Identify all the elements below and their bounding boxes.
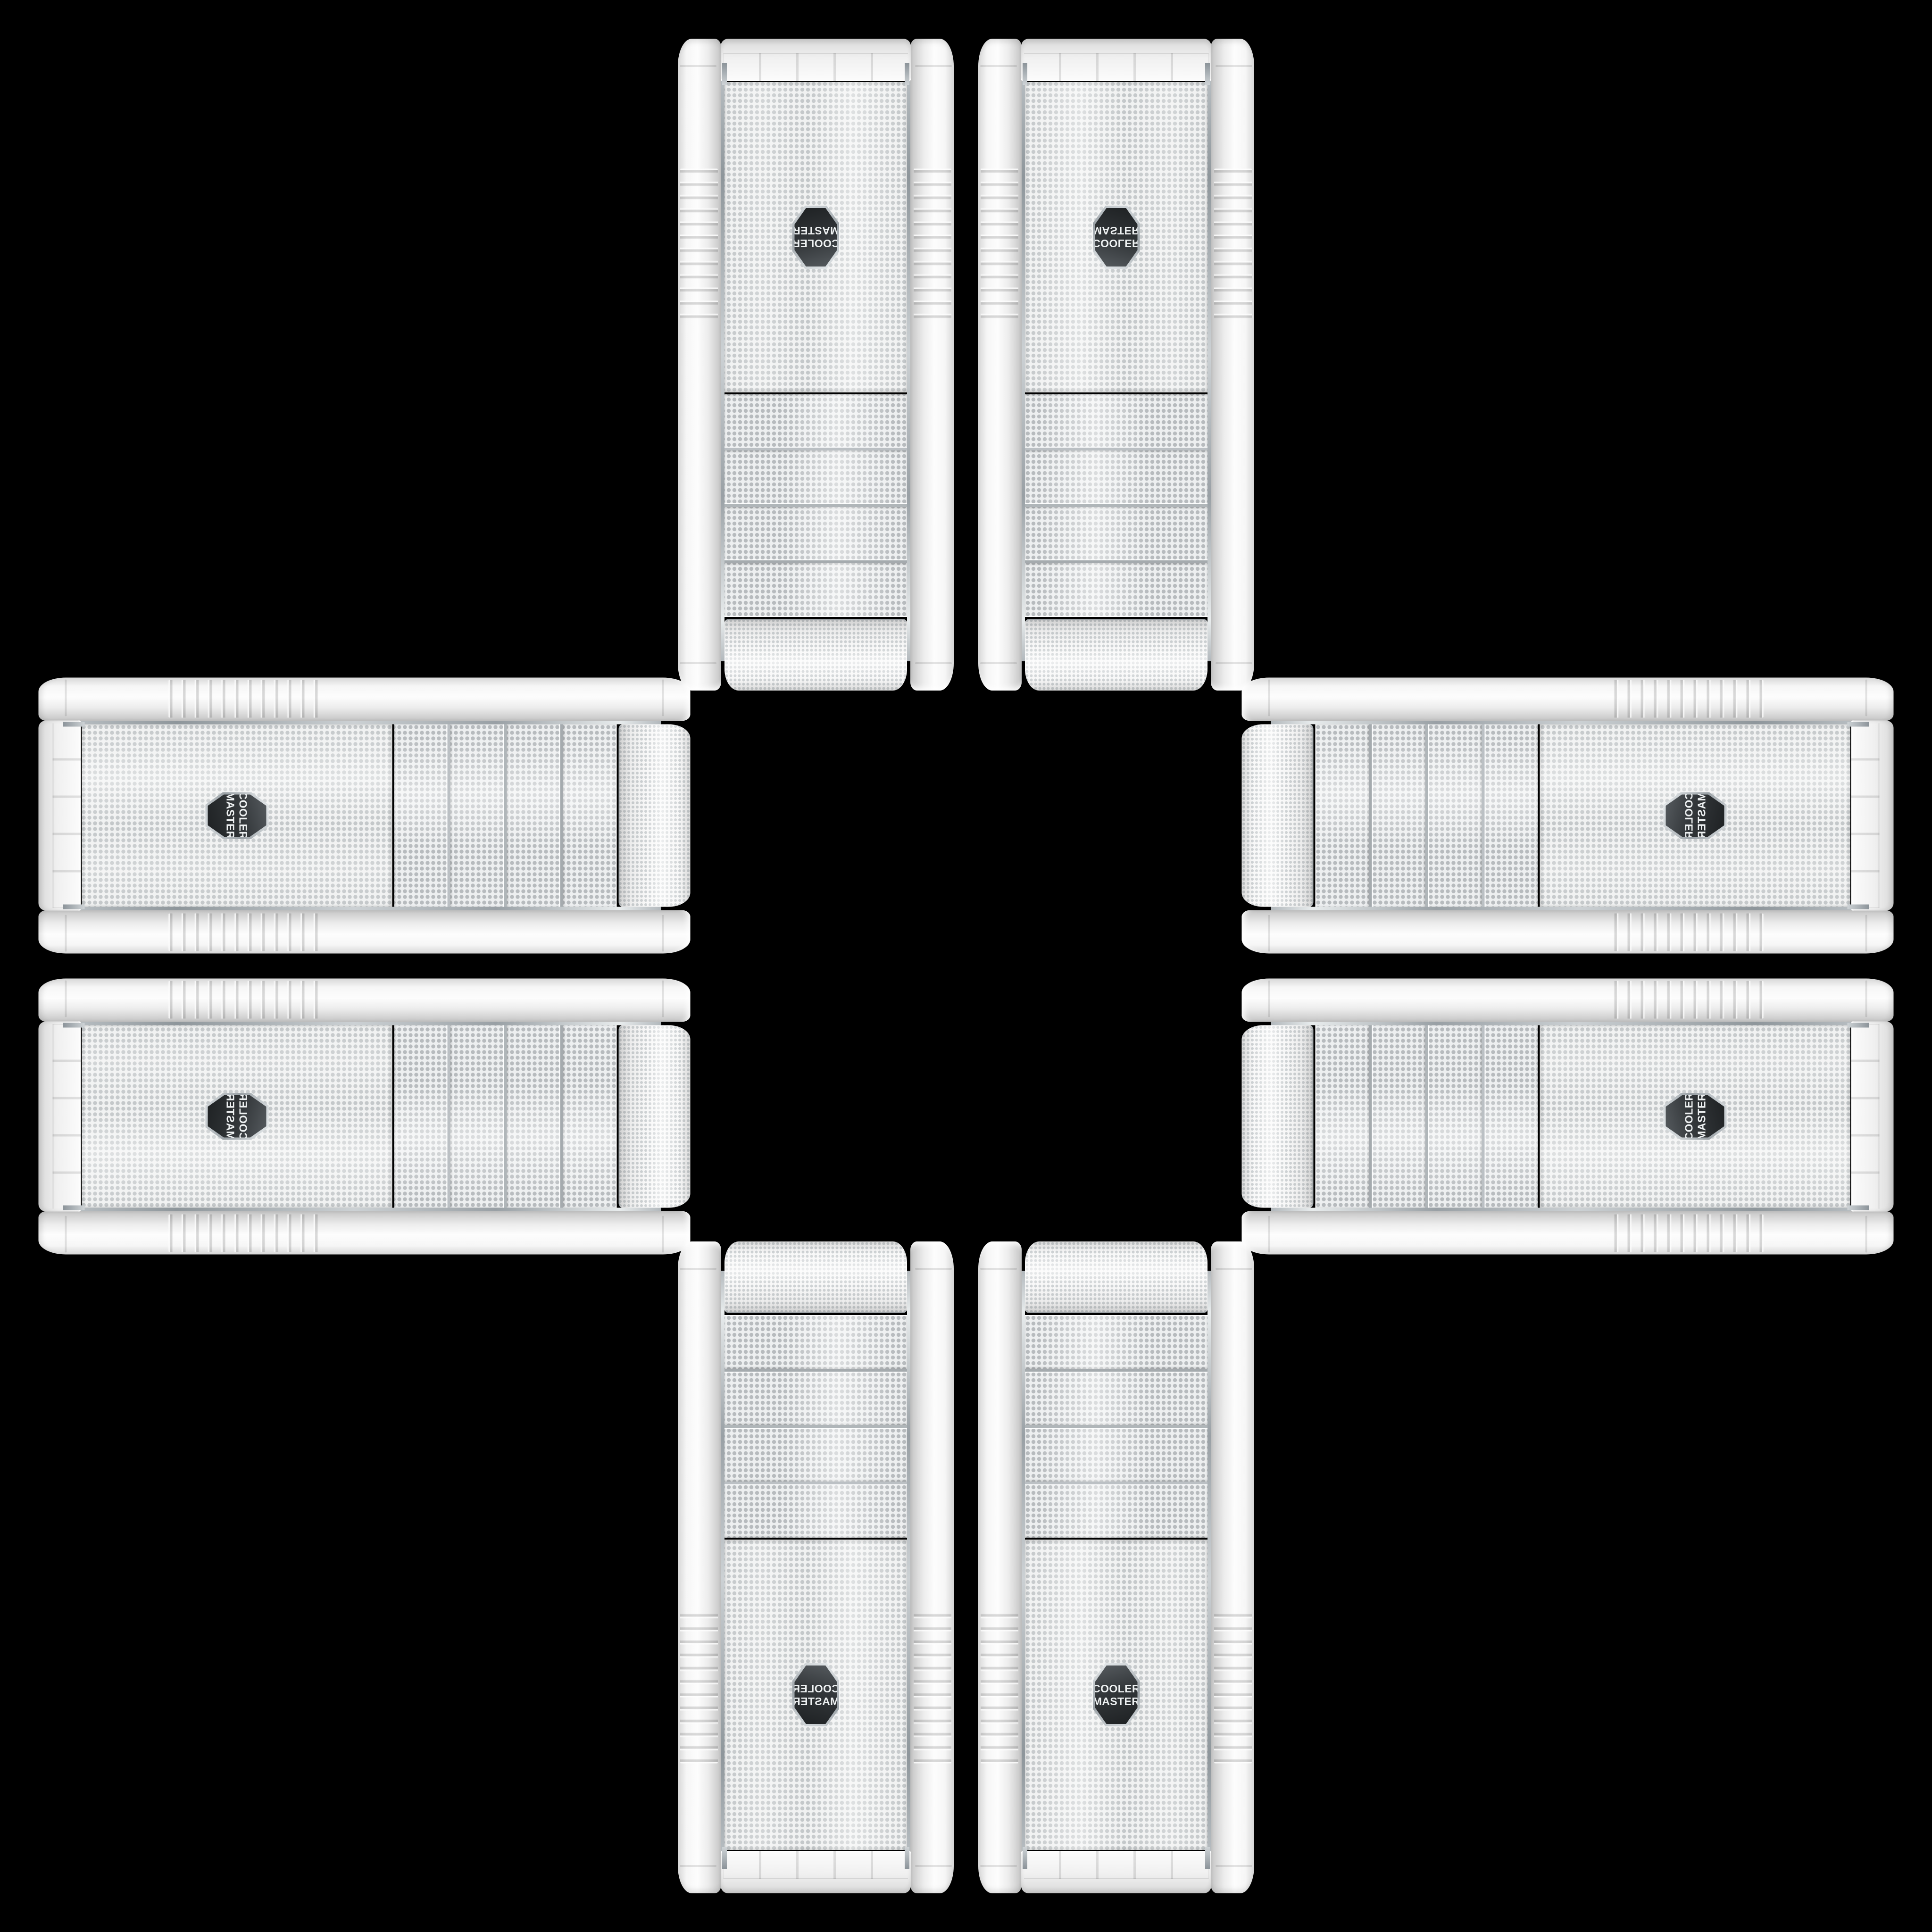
front-intake-mesh: COOLER MASTER — [1025, 1540, 1207, 1850]
bulge-shading — [620, 1025, 691, 1208]
bay-cover — [1025, 507, 1207, 561]
bay-cover — [1372, 724, 1425, 907]
bay-cover — [724, 451, 907, 505]
badge-face: COOLER MASTER — [795, 208, 837, 266]
bottom-cap — [1021, 1851, 1211, 1893]
rail-grip-ribs — [1214, 1606, 1252, 1766]
rail-grip-ribs — [166, 981, 326, 1019]
bay-cover — [724, 394, 907, 448]
front-intake-mesh: COOLER MASTER — [724, 82, 907, 392]
chrome-trim — [1207, 71, 1211, 661]
side-rail — [910, 39, 954, 691]
drive-bay-covers — [1316, 1025, 1538, 1208]
bay-cover — [724, 1428, 907, 1482]
logo-text-line2: MASTER — [792, 225, 840, 237]
logo-text-line1: COOLER — [1092, 1683, 1140, 1694]
badge-face: COOLER MASTER — [208, 1095, 266, 1138]
bulge-shading — [724, 1241, 907, 1312]
rail-grip-ribs — [1606, 1215, 1766, 1252]
cap-sculpt-grooves — [724, 53, 908, 81]
bay-cover — [563, 1025, 617, 1208]
chrome-trim — [71, 1208, 661, 1211]
badge-face: COOLER MASTER — [1666, 1095, 1724, 1138]
cap-sculpt-grooves — [53, 724, 81, 908]
bulge-shading — [1242, 1025, 1313, 1208]
bay-cover — [450, 1025, 504, 1208]
side-rail — [1211, 1241, 1254, 1893]
bay-cover — [394, 724, 448, 907]
bottom-cap — [721, 39, 911, 81]
bay-cover — [1484, 724, 1538, 907]
top-mesh-bulge — [724, 1241, 907, 1313]
side-rail — [678, 1241, 721, 1893]
cooler-master-badge: COOLER MASTER — [1093, 206, 1140, 269]
side-rail — [678, 39, 721, 691]
logo-text-line2: MASTER — [225, 1093, 236, 1140]
side-rail — [910, 1241, 954, 1893]
cap-sculpt-grooves — [1851, 1024, 1880, 1209]
pc-case-left-bottom: COOLER MASTER — [37, 979, 692, 1255]
top-mesh-bulge — [1025, 1241, 1207, 1313]
rail-grip-ribs — [680, 1606, 718, 1766]
bay-cover — [1428, 1025, 1482, 1208]
chrome-trim — [1271, 907, 1862, 910]
cooler-master-badge: COOLER MASTER — [1664, 1093, 1727, 1140]
bay-cover — [724, 1484, 907, 1538]
rail-grip-ribs — [166, 914, 326, 951]
drive-bay-covers — [724, 1315, 907, 1538]
cooler-master-badge: COOLER MASTER — [206, 1093, 269, 1140]
chrome-trim — [1207, 1271, 1211, 1861]
rail-grip-ribs — [1606, 680, 1766, 718]
bay-cover — [394, 1025, 448, 1208]
bulge-shading — [1242, 724, 1313, 907]
drive-bay-covers — [724, 394, 907, 617]
front-intake-mesh: COOLER MASTER — [82, 724, 392, 907]
logo-text-line2: MASTER — [225, 792, 236, 839]
rail-grip-ribs — [1606, 914, 1766, 951]
chrome-trim — [721, 1271, 724, 1861]
badge-face: COOLER MASTER — [208, 794, 266, 837]
bulge-shading — [724, 620, 907, 691]
side-rail — [1242, 910, 1894, 954]
logo-text-line1: COOLER — [1683, 792, 1694, 840]
top-mesh-bulge — [1242, 724, 1314, 907]
pc-case-right-bottom: COOLER MASTER — [1240, 979, 1896, 1255]
chrome-trim — [721, 71, 724, 661]
logo-text-line2: MASTER — [1093, 225, 1140, 237]
top-mesh-bulge — [1025, 619, 1207, 691]
bottom-cap — [39, 721, 81, 911]
badge-face: COOLER MASTER — [1666, 794, 1724, 837]
side-rail — [39, 979, 691, 1022]
drive-bay-covers — [394, 724, 617, 907]
pc-case-left-top: COOLER MASTER — [37, 678, 692, 954]
front-panel: COOLER MASTER — [39, 1025, 691, 1208]
cooler-master-badge: COOLER MASTER — [792, 206, 840, 269]
front-panel: COOLER MASTER — [1025, 39, 1207, 691]
bottom-cap — [39, 1022, 81, 1212]
logo-text-line2: MASTER — [1093, 1696, 1140, 1707]
front-intake-mesh: COOLER MASTER — [82, 1025, 392, 1208]
bay-cover — [507, 724, 561, 907]
cap-sculpt-grooves — [1024, 53, 1208, 81]
logo-text-line1: COOLER — [1683, 1093, 1694, 1141]
side-rail — [978, 39, 1022, 691]
black-background-canvas: COOLER MASTER — [0, 0, 1932, 1932]
rail-grip-ribs — [1606, 981, 1766, 1019]
bay-cover — [1025, 394, 1207, 448]
cap-sculpt-grooves — [1024, 1851, 1208, 1879]
bay-cover — [1025, 1372, 1207, 1425]
bay-cover — [1316, 724, 1369, 907]
drive-bay-covers — [1025, 394, 1207, 617]
top-mesh-bulge — [724, 619, 907, 691]
rail-grip-ribs — [1214, 166, 1252, 326]
bay-cover — [563, 724, 617, 907]
pc-case-bottom-left: COOLER MASTER — [678, 1240, 954, 1895]
side-rail — [39, 1211, 691, 1255]
bay-cover — [1025, 1484, 1207, 1538]
drive-bay-covers — [394, 1025, 617, 1208]
logo-text-line1: COOLER — [792, 238, 840, 250]
bottom-cap — [1021, 39, 1211, 81]
side-rail — [1242, 1211, 1894, 1255]
side-rail — [39, 678, 691, 721]
bottom-cap — [1851, 1022, 1894, 1212]
bay-cover — [1428, 724, 1482, 907]
front-intake-mesh: COOLER MASTER — [724, 1540, 907, 1850]
rail-grip-ribs — [981, 1606, 1018, 1766]
rail-grip-ribs — [914, 166, 951, 326]
pc-case-top-right: COOLER MASTER — [978, 37, 1254, 692]
front-intake-mesh: COOLER MASTER — [1540, 1025, 1850, 1208]
chrome-trim — [71, 1022, 661, 1025]
chrome-trim — [907, 71, 910, 661]
chrome-trim — [907, 1271, 910, 1861]
front-panel: COOLER MASTER — [1242, 724, 1894, 907]
rail-grip-ribs — [166, 1215, 326, 1252]
rail-grip-ribs — [914, 1606, 951, 1766]
chrome-trim — [1271, 1208, 1862, 1211]
drive-bay-covers — [1025, 1315, 1207, 1538]
front-panel: COOLER MASTER — [1025, 1241, 1207, 1893]
cooler-master-badge: COOLER MASTER — [206, 792, 269, 839]
bay-cover — [1484, 1025, 1538, 1208]
front-panel: COOLER MASTER — [724, 39, 907, 691]
badge-face: COOLER MASTER — [1095, 208, 1138, 266]
logo-text-line1: COOLER — [792, 1683, 840, 1694]
chrome-trim — [1022, 1271, 1025, 1861]
front-intake-mesh: COOLER MASTER — [1025, 82, 1207, 392]
top-mesh-bulge — [619, 1025, 691, 1208]
bay-cover — [1025, 564, 1207, 617]
logo-text-line2: MASTER — [1696, 792, 1707, 839]
bulge-shading — [1025, 1241, 1207, 1312]
chrome-trim — [1271, 721, 1862, 724]
chrome-trim — [1271, 1022, 1862, 1025]
badge-face: COOLER MASTER — [795, 1666, 837, 1724]
front-panel: COOLER MASTER — [724, 1241, 907, 1893]
bay-cover — [724, 1372, 907, 1425]
front-intake-mesh: COOLER MASTER — [1540, 724, 1850, 907]
bay-cover — [1372, 1025, 1425, 1208]
bay-cover — [450, 724, 504, 907]
chrome-trim — [71, 721, 661, 724]
bulge-shading — [1025, 620, 1207, 691]
logo-text-line2: MASTER — [792, 1696, 840, 1707]
front-panel: COOLER MASTER — [39, 724, 691, 907]
rail-grip-ribs — [680, 166, 718, 326]
side-rail — [1211, 39, 1254, 691]
bay-cover — [1025, 1315, 1207, 1369]
top-mesh-bulge — [1242, 1025, 1314, 1208]
bay-cover — [724, 507, 907, 561]
cap-sculpt-grooves — [724, 1851, 908, 1879]
side-rail — [1242, 979, 1894, 1022]
pc-case-bottom-right: COOLER MASTER — [978, 1240, 1254, 1895]
pc-case-top-left: COOLER MASTER — [678, 37, 954, 692]
side-rail — [978, 1241, 1022, 1893]
bulge-shading — [620, 724, 691, 907]
rail-grip-ribs — [981, 166, 1018, 326]
cooler-master-badge: COOLER MASTER — [1664, 792, 1727, 839]
cap-sculpt-grooves — [1851, 724, 1880, 908]
logo-text-line2: MASTER — [1696, 1093, 1707, 1140]
bay-cover — [724, 564, 907, 617]
side-rail — [39, 910, 691, 954]
cooler-master-badge: COOLER MASTER — [1093, 1663, 1140, 1726]
bay-cover — [1025, 1428, 1207, 1482]
top-mesh-bulge — [619, 724, 691, 907]
drive-bay-covers — [1316, 724, 1538, 907]
chrome-trim — [1022, 71, 1025, 661]
side-rail — [1242, 678, 1894, 721]
bottom-cap — [721, 1851, 911, 1893]
bay-cover — [1316, 1025, 1369, 1208]
badge-face: COOLER MASTER — [1095, 1666, 1138, 1724]
logo-text-line1: COOLER — [1092, 238, 1140, 250]
pc-case-right-top: COOLER MASTER — [1240, 678, 1896, 954]
front-panel: COOLER MASTER — [1242, 1025, 1894, 1208]
logo-text-line1: COOLER — [238, 792, 249, 840]
bay-cover — [507, 1025, 561, 1208]
bay-cover — [724, 1315, 907, 1369]
cap-sculpt-grooves — [53, 1024, 81, 1209]
logo-text-line1: COOLER — [238, 1093, 249, 1141]
bottom-cap — [1851, 721, 1894, 911]
bay-cover — [1025, 451, 1207, 505]
rail-grip-ribs — [166, 680, 326, 718]
cooler-master-badge: COOLER MASTER — [792, 1663, 840, 1726]
chrome-trim — [71, 907, 661, 910]
